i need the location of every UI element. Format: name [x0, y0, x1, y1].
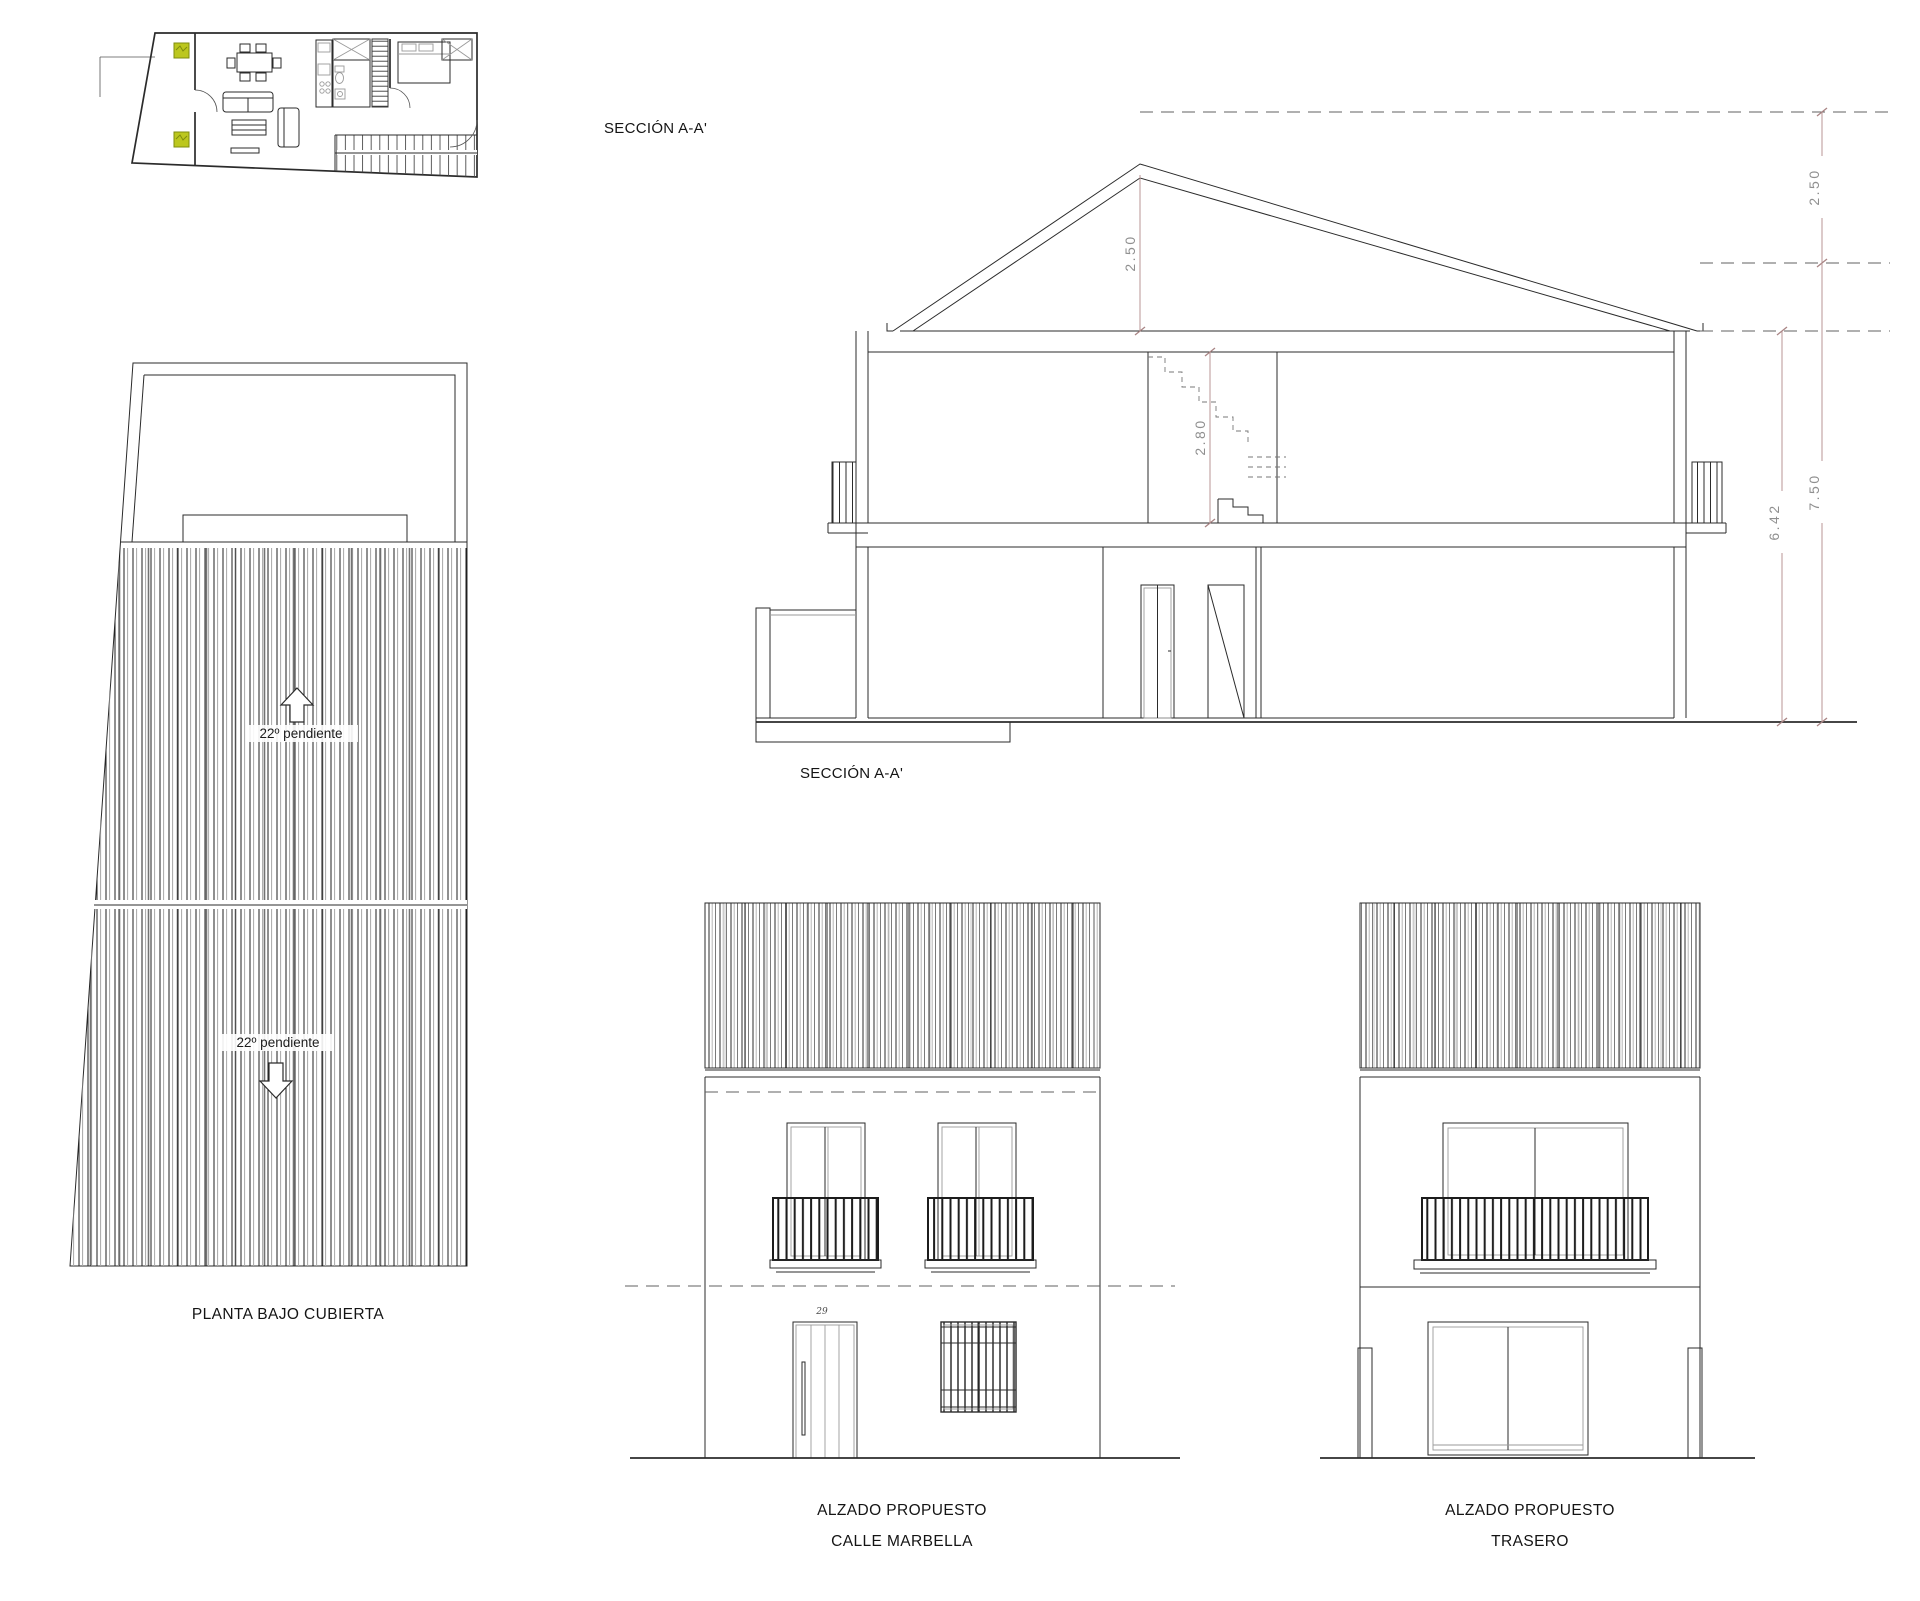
kitchen-counter — [316, 40, 332, 107]
dim-eaves-height: 6.42 — [1766, 327, 1787, 726]
dim-text-parapet: 2.50 — [1806, 168, 1822, 205]
dim-total-height: 7.50 — [1806, 263, 1827, 726]
plant-icon — [174, 132, 189, 147]
stairs — [335, 135, 477, 177]
plant-icon — [174, 43, 189, 58]
dim-text-upper-floor: 2.80 — [1192, 418, 1208, 455]
floor-plan-key — [95, 20, 485, 190]
dim-upper-floor: 2.80 — [1192, 348, 1215, 527]
coffee-table — [232, 120, 266, 135]
rear-facade — [1360, 1077, 1700, 1458]
section-door-2 — [1208, 585, 1244, 718]
dim-text-total: 7.50 — [1806, 473, 1822, 510]
section-roof — [887, 164, 1703, 331]
door-number-text: 29 — [815, 1307, 828, 1317]
rear-roof-band — [1360, 903, 1700, 1077]
dim-ridge-height: 2.50 — [1122, 175, 1145, 335]
roof-slope-text-upper: 22º pendiente — [259, 726, 342, 741]
drawing-sheet: 22º pendiente 22º pendiente 2.50 — [0, 0, 1920, 1601]
right-balcony-railing — [1692, 462, 1722, 523]
dim-text-eaves: 6.42 — [1766, 503, 1782, 540]
dim-text-ridge: 2.50 — [1122, 234, 1138, 271]
level-lines — [1140, 112, 1895, 331]
front-barred-window — [941, 1322, 1016, 1412]
dim-parapet: 2.50 — [1806, 108, 1827, 267]
left-balcony-railing — [832, 462, 856, 523]
terrace-partition — [195, 33, 217, 166]
rear-ground-window — [1428, 1322, 1588, 1455]
roof-slope-text-lower: 22º pendiente — [236, 1035, 319, 1050]
ridge-line — [93, 900, 467, 909]
section-title-bottom: SECCIÓN A-A' — [800, 765, 903, 782]
roof-plan-title: PLANTA BAJO CUBIERTA — [192, 1306, 384, 1324]
section-title-top: SECCIÓN A-A' — [604, 120, 707, 137]
section-drawing: 2.50 — [630, 85, 1900, 760]
rooftop-structure — [183, 515, 407, 542]
rear-elevation-title-1: ALZADO PROPUESTO — [1445, 1502, 1615, 1520]
front-balcony-left — [770, 1198, 881, 1272]
bedroom — [390, 39, 472, 108]
rear-balcony — [1414, 1198, 1656, 1273]
front-balcony-right — [925, 1198, 1036, 1272]
dining-table — [227, 44, 281, 81]
front-facade — [625, 1077, 1175, 1458]
roof-plan: 22º pendiente 22º pendiente — [60, 355, 480, 1285]
tv-bench — [231, 148, 259, 153]
section-door-1 — [1141, 585, 1174, 718]
bathroom — [333, 39, 370, 107]
rear-elevation — [1310, 895, 1770, 1470]
front-elevation: 29 — [620, 895, 1190, 1470]
front-elevation-title-1: ALZADO PROPUESTO — [817, 1502, 987, 1520]
rear-elevation-title-2: TRASERO — [1491, 1533, 1569, 1551]
front-door: 29 — [793, 1307, 857, 1458]
section-stair — [1148, 352, 1286, 523]
section-ground-floor — [756, 547, 1857, 722]
roof-ladder — [372, 39, 388, 107]
front-elevation-title-2: CALLE MARBELLA — [831, 1533, 973, 1551]
front-roof-band — [705, 903, 1100, 1077]
